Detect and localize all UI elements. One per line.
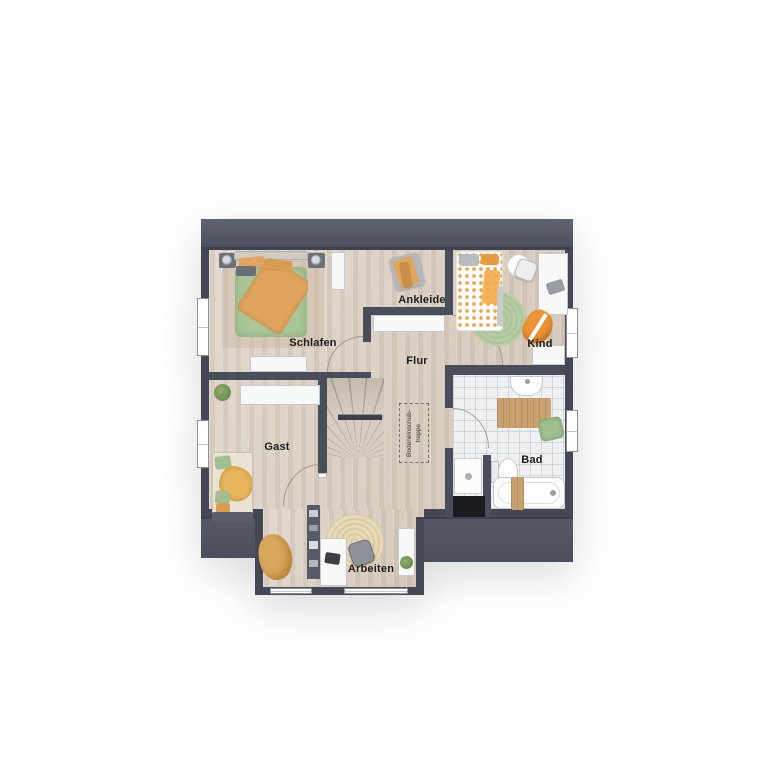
loft-ladder-label-line2: treppe [415,424,423,442]
shower-dark-mat [453,496,485,517]
gast-bed-footboard [212,512,253,522]
plant-gast [214,384,231,401]
room-label-gast: Gast [264,441,289,453]
bathtub [493,477,565,509]
window-gast [197,420,209,468]
loft-ladder-hatch: Bodeneinschub- treppe [399,403,429,463]
plant-arbeiten [400,556,413,569]
office-shelf-item-3 [309,541,318,549]
dresser-ankleide [373,315,445,332]
roof-block-bottom-right [424,517,573,562]
wardrobe-gast [240,385,320,405]
double-bed [234,251,308,339]
stair-handrail [338,414,382,420]
wall-kind-bad [445,365,565,375]
bathtub-caddy [511,477,524,510]
window-schlafen [197,298,209,356]
wall-bad-west-upper [445,375,453,408]
wall-ankleide-kind [445,250,453,310]
bath-sink-faucet [525,379,530,384]
wall-bad-west-lower [445,448,453,517]
dormer-window-left [270,588,312,594]
outer-wall-left [201,250,209,517]
floor-plan-canvas: Bodeneinschub- treppe [0,0,775,775]
kid-beanbag-strap [528,313,547,341]
room-label-flur: Flur [406,355,428,367]
roof-band-top [201,219,573,250]
loft-ladder-label-line1: Bodeneinschub- [406,410,414,457]
nightstand-lamp-left [222,255,232,265]
wall-ankleide-south [363,307,453,315]
dormer-wall-right [416,517,424,595]
floor-plan: Bodeneinschub- treppe [0,0,775,775]
kid-bed-pillow-gray [459,254,479,266]
bathtub-faucet [550,490,556,496]
kid-bed-edge [497,286,503,326]
room-label-ankleide: Ankleide [398,294,445,306]
window-bad [566,410,578,452]
shower-drain [465,473,472,480]
shower-tray [454,458,482,494]
office-shelf-item-2 [309,525,318,531]
gast-bed [212,452,253,518]
window-kind [566,308,578,358]
nightstand-lamp-right [311,255,321,265]
room-label-arbeiten: Arbeiten [348,563,394,575]
room-label-kind: Kind [527,338,552,350]
office-laptop [324,552,340,565]
wardrobe-schlafen-tall [331,252,345,290]
kid-bed [456,251,503,331]
room-label-bad: Bad [521,454,542,466]
room-label-schlafen: Schlafen [289,337,336,349]
office-shelf [307,505,320,579]
office-shelf-item-4 [309,560,318,567]
bed-tray [236,266,256,276]
dormer-window-right [344,588,408,594]
bed-pillow-orange-2 [264,259,293,272]
office-shelf-item-1 [309,510,318,517]
kid-bed-pillow-orange [481,254,499,265]
roof-block-bottom-left [201,517,263,558]
dresser-schlafen [250,356,307,372]
